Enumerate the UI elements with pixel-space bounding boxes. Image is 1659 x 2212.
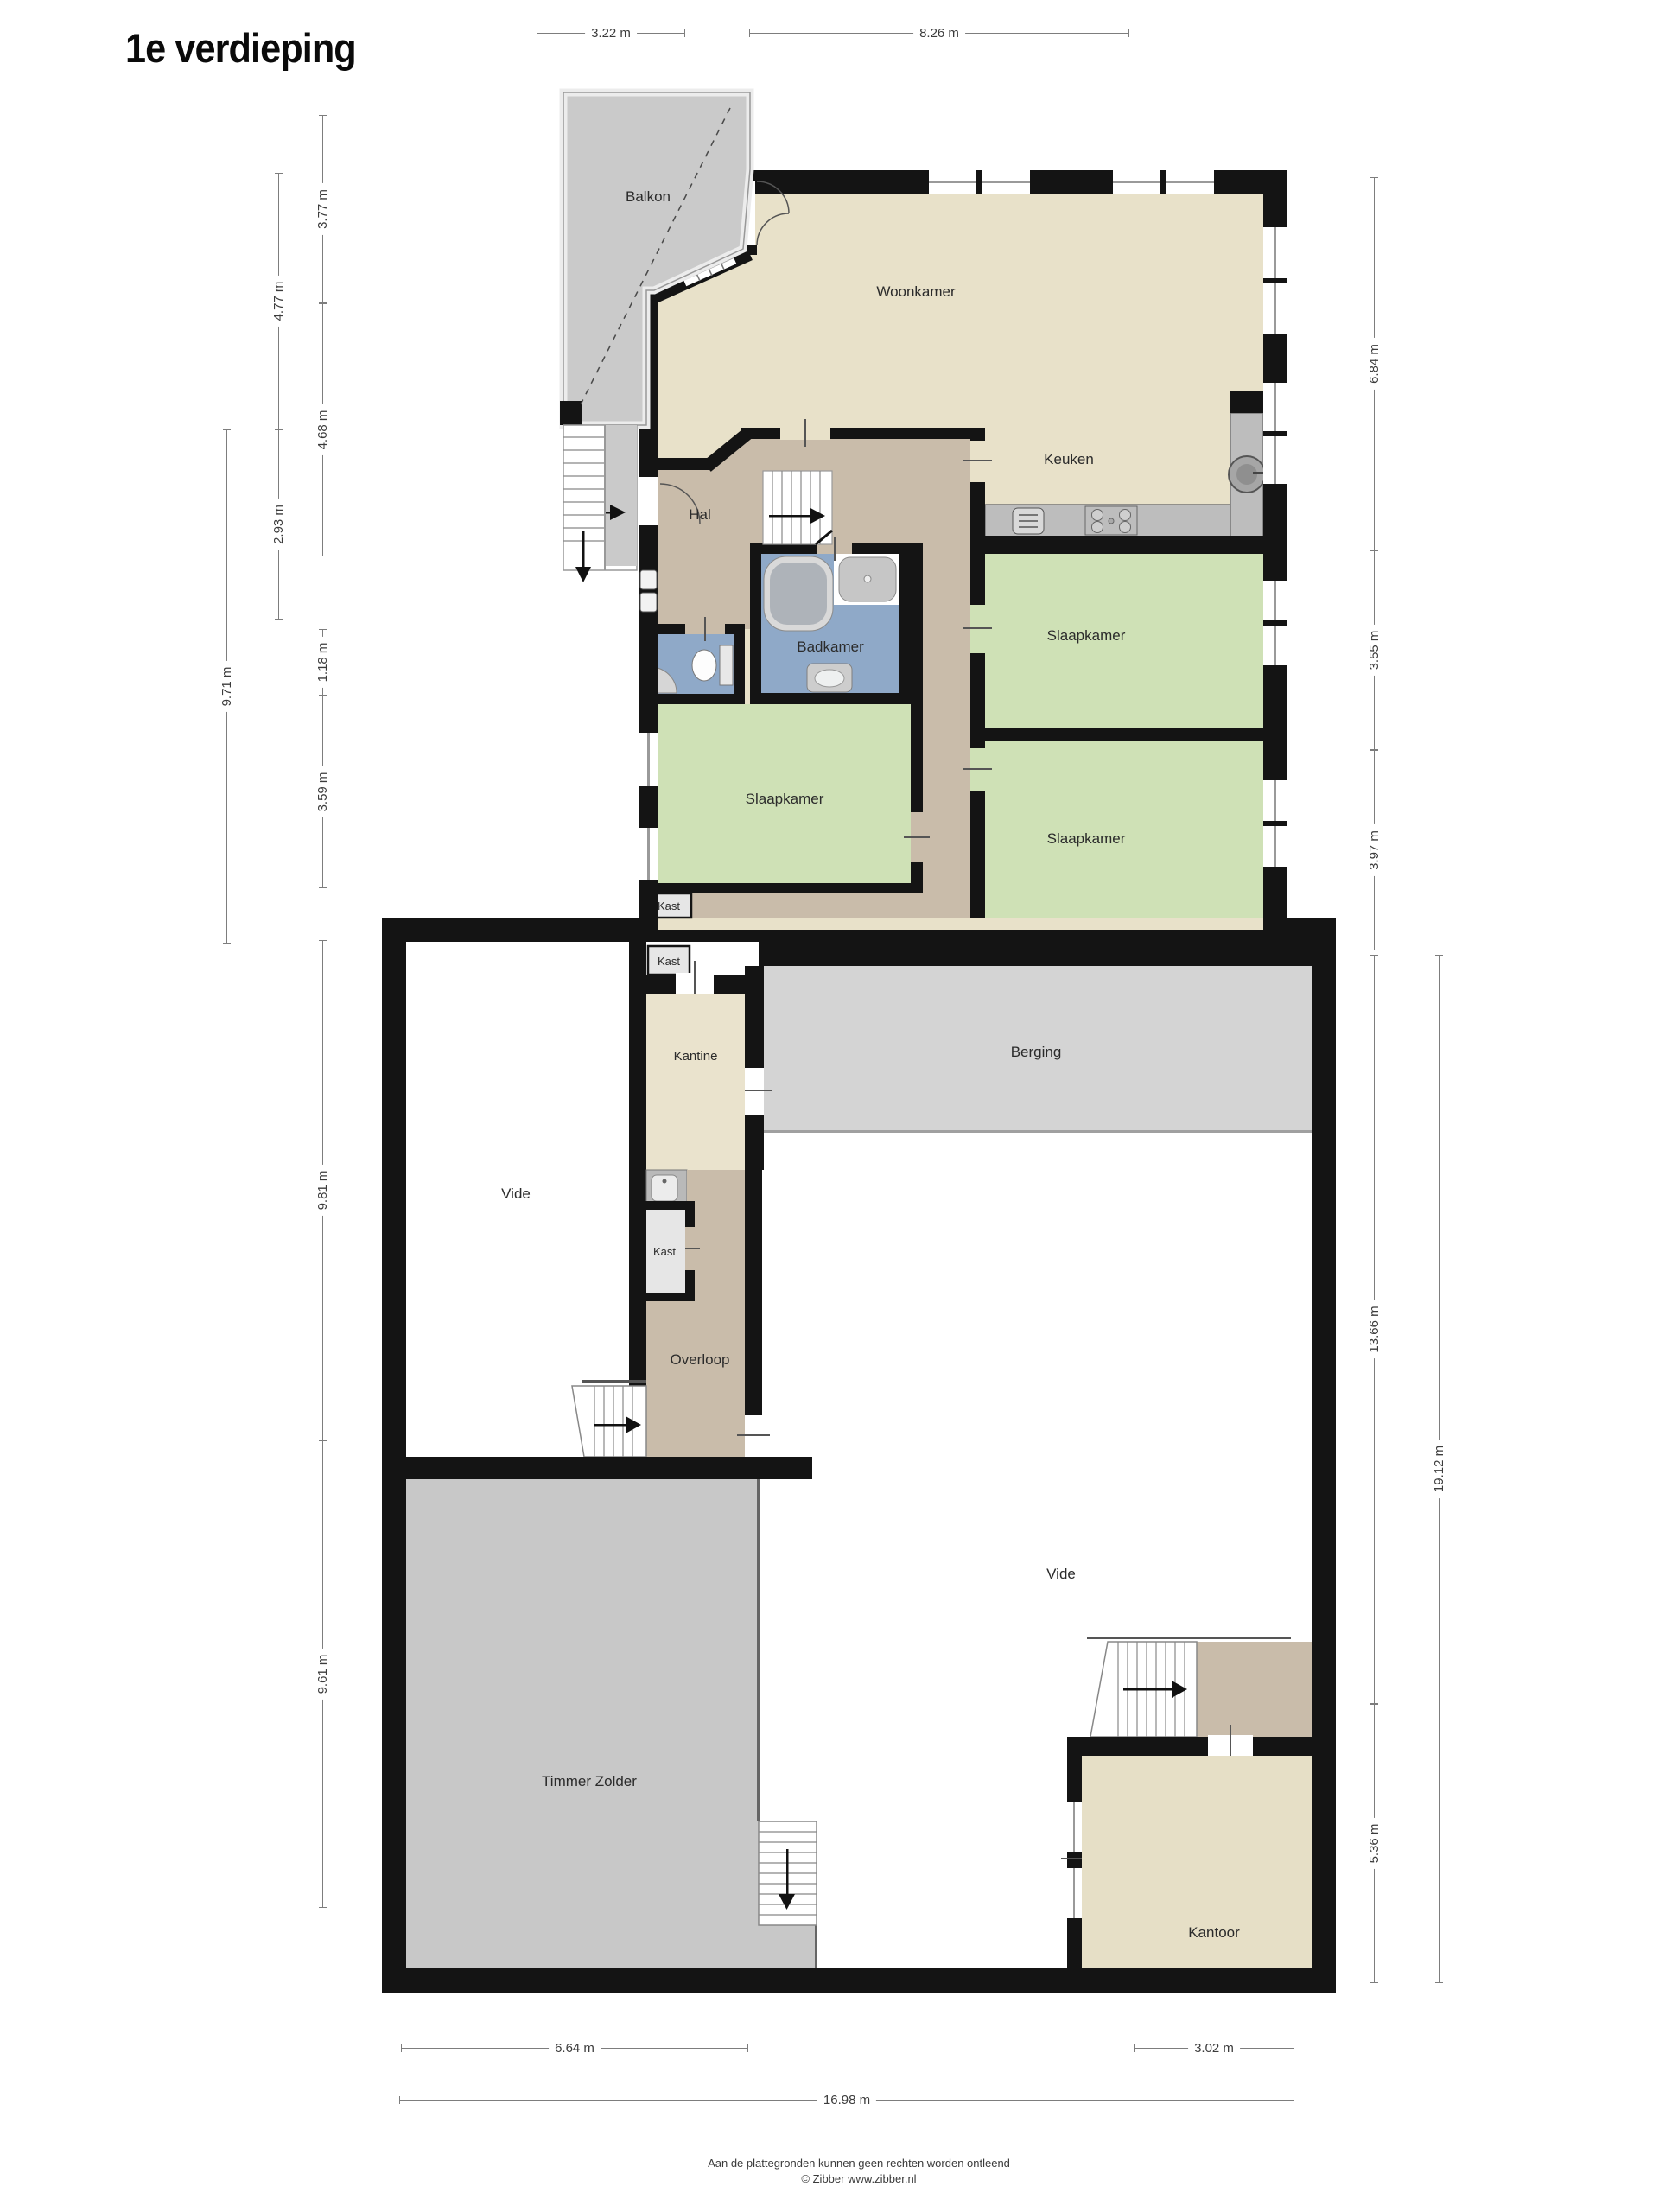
faucet-dot-icon [663, 1179, 667, 1184]
stair-arrow-shaft [1123, 1688, 1172, 1691]
dim-3-22-m: 3.22 m [537, 33, 685, 34]
shower-drain-icon [864, 575, 871, 582]
room-label-vide-rechts: Vide [1046, 1566, 1076, 1582]
window-mullion [1160, 170, 1166, 194]
window-mullion [1263, 821, 1287, 826]
wall-stub [1230, 391, 1263, 413]
dim-9-71-m: 9.71 m [226, 429, 227, 944]
door-tick [963, 627, 992, 629]
timmer-top-wall [393, 1457, 812, 1479]
balkon-post [560, 401, 582, 425]
toilet-right-wall [734, 624, 745, 704]
window-line [647, 828, 650, 880]
dim-3-02-m: 3.02 m [1134, 2048, 1294, 2049]
room-label-kantoor: Kantoor [1188, 1924, 1240, 1941]
room-timmer-zolder [406, 1479, 759, 1968]
door-tick [904, 836, 930, 838]
stair-divider [604, 425, 606, 570]
wall-tick [804, 419, 806, 447]
room-kantine [646, 994, 745, 1170]
window-mullion [1263, 620, 1287, 626]
floorplan-page: 1e verdieping [0, 0, 1659, 2212]
window-line [1073, 1802, 1075, 1852]
room-label-kast-2: Kast [658, 955, 680, 968]
room-label-balkon: Balkon [626, 188, 671, 205]
window-mullion [976, 170, 982, 194]
timmer-zolder-ext [759, 1925, 817, 1968]
room-label-woonkamer: Woonkamer [876, 283, 956, 300]
stairs-hal [763, 471, 832, 544]
stair-arrow-shaft [769, 515, 810, 518]
washbasin-bowl [815, 670, 844, 687]
burner-icon [1120, 522, 1131, 533]
toilet-door-tick [704, 617, 706, 641]
door-tick [963, 460, 992, 461]
burner-icon [1092, 522, 1103, 533]
room-label-vide-links: Vide [501, 1185, 531, 1202]
room-label-overloop: Overloop [671, 1351, 730, 1368]
kantoor-landing [1197, 1642, 1312, 1737]
stairs-arrow-icon [575, 567, 591, 582]
dim-9-61-m: 9.61 m [322, 1440, 323, 1908]
stove-knob [1109, 518, 1114, 524]
room-label-kantine: Kantine [674, 1049, 718, 1064]
slaapkamer-links-south-wall [639, 883, 923, 893]
corridor-east-wall [970, 434, 985, 918]
room-label-badkamer: Badkamer [797, 639, 864, 655]
dim-3-59-m: 3.59 m [322, 696, 323, 888]
timmer-edge-line [757, 1479, 760, 1821]
dim-4-68-m: 4.68 m [322, 303, 323, 556]
dim-3-97-m: 3.97 m [1374, 750, 1375, 950]
toilet-icon [692, 650, 716, 681]
stair-rail-line [582, 1380, 646, 1382]
dim-8-26-m: 8.26 m [749, 33, 1129, 34]
stair-rail-line [1087, 1637, 1291, 1639]
keuken-slaapkamer-wall [985, 536, 1263, 554]
dim-6-84-m: 6.84 m [1374, 177, 1375, 550]
upper-apartment [560, 92, 1287, 942]
badkamer-bottom-wall [750, 693, 911, 704]
door-tick [963, 768, 992, 770]
toilet-tank-icon [720, 645, 733, 685]
stairs-overloop [572, 1386, 646, 1457]
room-label-slaapkamer-rechts-1: Slaapkamer [1047, 627, 1126, 644]
room-label-keuken: Keuken [1044, 451, 1094, 467]
bathtub-basin [770, 563, 827, 625]
meter-cabinet-icon [640, 593, 657, 612]
entrance-door-gap [639, 477, 658, 525]
dim-9-81-m: 9.81 m [322, 940, 323, 1440]
room-label-timmer-zolder: Timmer Zolder [542, 1773, 637, 1789]
berging-top-wall [759, 942, 1312, 966]
entrance-landing [605, 425, 637, 566]
stair-arrow-shaft [786, 1849, 789, 1894]
dim-4-77-m: 4.77 m [278, 173, 279, 429]
faucet-icon [1253, 472, 1265, 474]
footer-disclaimer: Aan de plattegronden kunnen geen rechten… [708, 2157, 1010, 2170]
room-label-berging: Berging [1011, 1044, 1062, 1060]
berging-edge-line [760, 1130, 1312, 1133]
dim-3-55-m: 3.55 m [1374, 550, 1375, 750]
dim-16-98-m: 16.98 m [399, 2100, 1294, 2101]
lower-building [382, 918, 1336, 1993]
kantoor-left-wall [1067, 1737, 1082, 1968]
dim-19-12-m: 19.12 m [1439, 955, 1440, 1983]
window-mullion [1263, 431, 1287, 436]
burner-icon [1120, 510, 1131, 521]
badkamer-door-tick [834, 537, 836, 561]
meter-cabinet-icon [640, 570, 657, 589]
badkamer-west-wall [750, 543, 761, 704]
window-mullion [1263, 278, 1287, 283]
dim-3-77-m: 3.77 m [322, 115, 323, 303]
dim-1-18-m: 1.18 m [322, 629, 323, 696]
dim-5-36-m: 5.36 m [1374, 1704, 1375, 1983]
window-line [1073, 1868, 1075, 1918]
stair-arrow-shaft [594, 1424, 626, 1427]
burner-icon [1092, 510, 1103, 521]
footer-copyright: © Zibber www.zibber.nl [801, 2172, 916, 2185]
badkamer-east-wall [899, 543, 911, 704]
overloop-door-tick [737, 1434, 770, 1436]
room-label-kast-3: Kast [653, 1245, 676, 1258]
floorplan-drawing: Balkon Woonkamer Keuken Hal Badkamer Sla… [0, 0, 1659, 2212]
dim-2-93-m: 2.93 m [278, 429, 279, 620]
stair-arrow-shaft [582, 531, 585, 569]
room-label-hal: Hal [689, 506, 711, 523]
dim-6-64-m: 6.64 m [401, 2048, 748, 2049]
room-label-slaapkamer-links: Slaapkamer [746, 791, 824, 807]
room-label-kast-1: Kast [658, 899, 680, 912]
keuken-hal-wall [741, 428, 985, 439]
kantoor-top-wall [1067, 1737, 1312, 1756]
window-line [647, 733, 650, 786]
room-label-slaapkamer-rechts-2: Slaapkamer [1047, 830, 1126, 847]
room-slaapkamer-rechts-2 [985, 741, 1263, 918]
slaapkamers-divider-wall [985, 728, 1263, 741]
dim-13-66-m: 13.66 m [1374, 955, 1375, 1704]
timmer-edge-line2 [815, 1925, 817, 1968]
